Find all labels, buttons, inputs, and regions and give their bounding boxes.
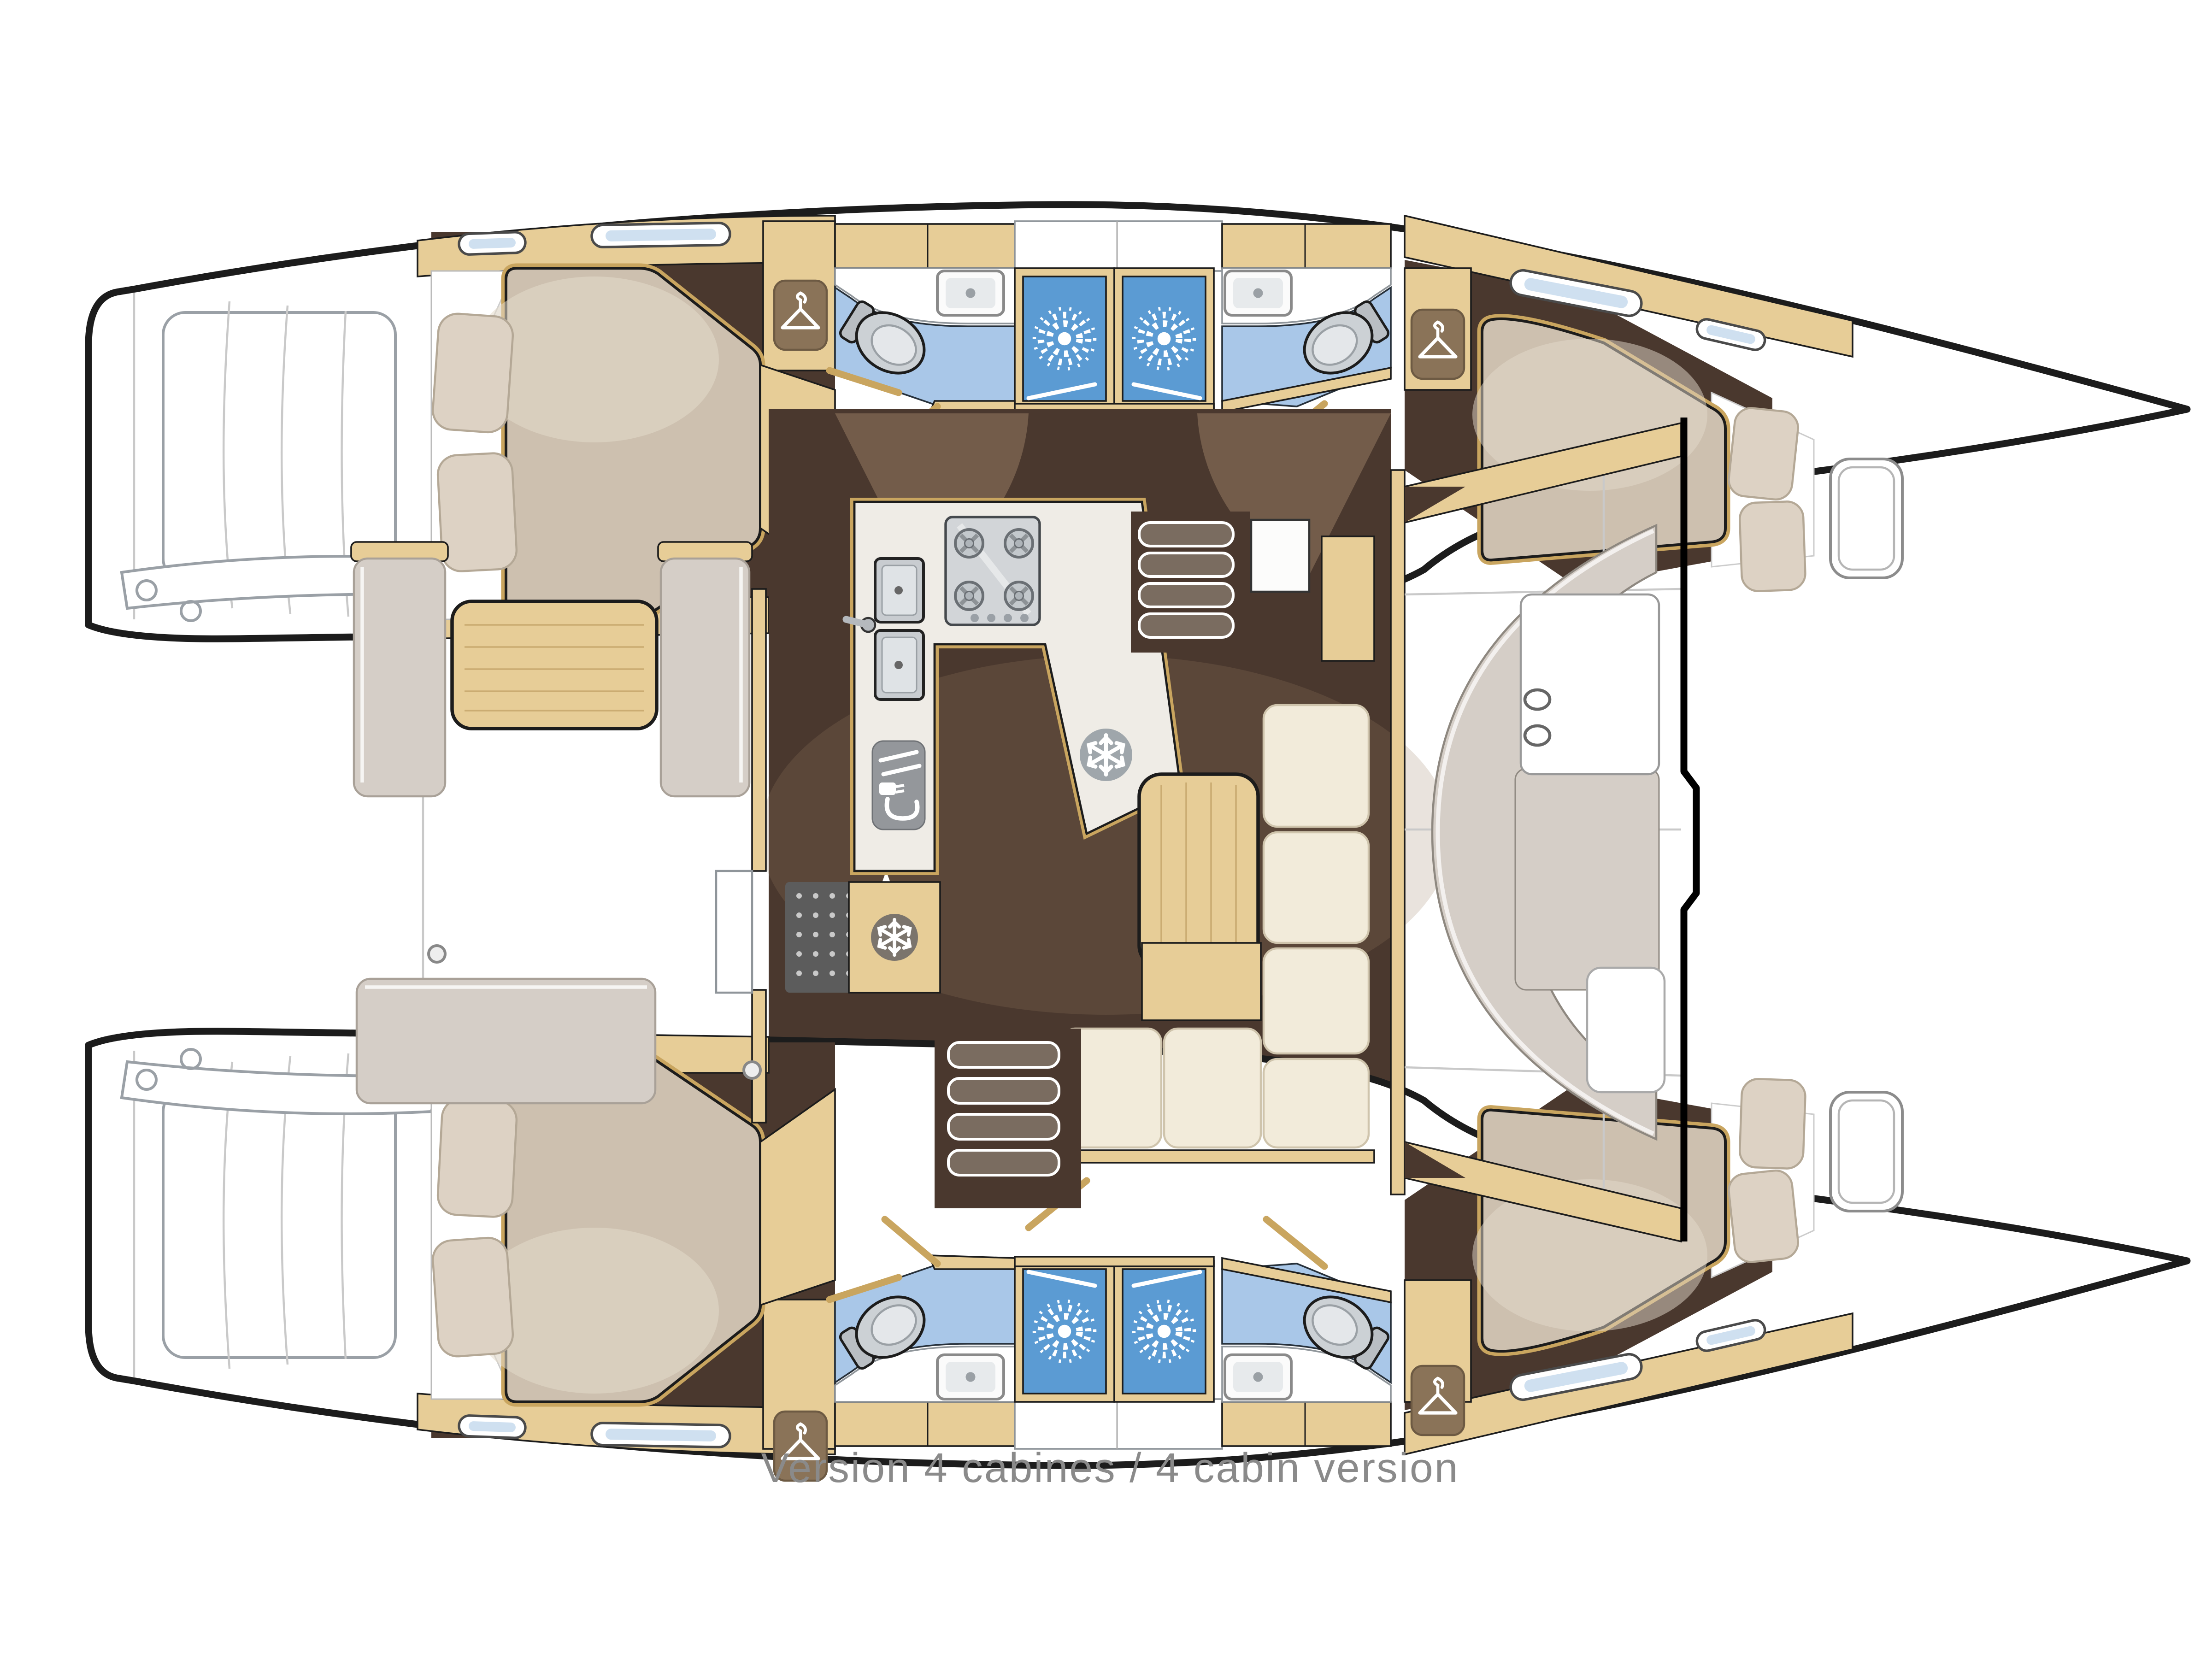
cupholder-icon [1525,726,1550,745]
cockpit-table [452,601,657,729]
saloon-table [1139,774,1258,968]
caption: Version 4 cabines / 4 cabin version [761,1445,1459,1491]
cockpit-bench [661,559,749,796]
steps-port [1131,512,1250,653]
cupholder-icon [744,1062,760,1078]
aft-cockpit [351,542,760,1103]
aft-bulkhead [752,589,766,871]
step-tread [948,1114,1059,1139]
cupholder-icon [1525,690,1550,709]
cupholder-icon [429,946,445,962]
sofa-cushion [1264,948,1369,1053]
aft-bulkhead [752,990,766,1123]
sliding-door [716,871,752,993]
sofa-cushion [1164,1029,1261,1147]
sofa-cushion [1264,832,1369,943]
cockpit-bench [354,559,445,796]
cockpit-aft-bench [357,979,655,1103]
nav-locker [1251,520,1309,592]
sofa-cushion [1264,705,1369,827]
sofa-cushion [1264,1059,1369,1147]
step-tread [1139,523,1233,546]
step-tread [948,1078,1059,1103]
galley-appliance-icon [872,741,925,829]
step-tread [1139,614,1233,637]
forward-seat-section [1515,769,1659,990]
storage-cabinet [1142,943,1261,1020]
footwell [1521,594,1659,774]
footwell [1587,968,1665,1092]
steps-starboard [935,1029,1081,1208]
step-tread [1139,583,1233,607]
sofa-base-trim [1053,1150,1374,1163]
step-tread [948,1150,1059,1175]
forward-bulkhead [1391,470,1405,1194]
fridge-cabinet [849,882,940,993]
step-tread [948,1042,1059,1067]
catamaran-floorplan: Version 4 cabines / 4 cabin version [0,0,2212,1659]
fridge-icon [1080,729,1132,781]
step-tread [1139,553,1233,577]
chart-cabinet [1322,536,1374,661]
